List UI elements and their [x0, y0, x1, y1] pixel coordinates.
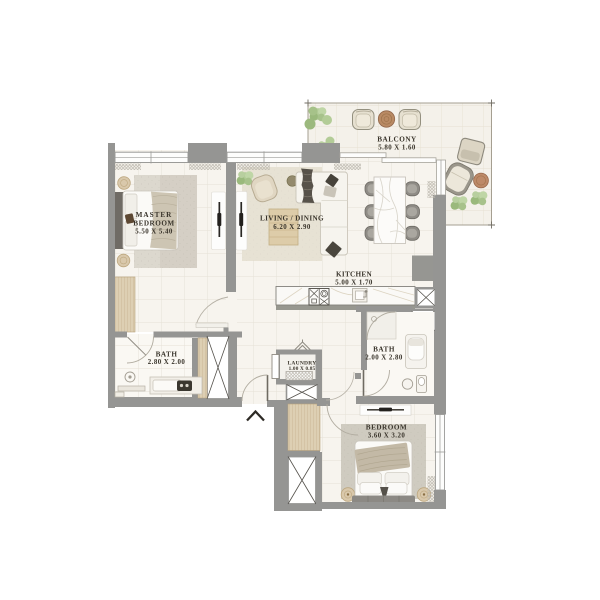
svg-text:5.80 X 1.60: 5.80 X 1.60 — [378, 145, 416, 152]
svg-text:LIVING / DINING: LIVING / DINING — [260, 215, 324, 223]
svg-text:2.80 X 2.00: 2.80 X 2.00 — [148, 359, 186, 366]
svg-text:1.00 X 0.85: 1.00 X 0.85 — [289, 366, 316, 372]
svg-text:6.20 X 2.90: 6.20 X 2.90 — [273, 224, 311, 231]
svg-text:5.50 X 5.40: 5.50 X 5.40 — [135, 229, 173, 236]
svg-text:BATH: BATH — [156, 351, 178, 359]
svg-text:3.60 X 3.20: 3.60 X 3.20 — [368, 433, 406, 440]
svg-text:MASTER: MASTER — [136, 211, 173, 219]
svg-text:BEDROOM: BEDROOM — [133, 219, 174, 227]
svg-text:BEDROOM: BEDROOM — [366, 423, 407, 431]
svg-text:BATH: BATH — [373, 346, 395, 354]
svg-text:KITCHEN: KITCHEN — [336, 271, 373, 279]
svg-text:BALCONY: BALCONY — [377, 136, 417, 144]
svg-text:5.00 X 1.70: 5.00 X 1.70 — [335, 280, 373, 287]
svg-text:2.00 X 2.80: 2.00 X 2.80 — [365, 355, 403, 362]
